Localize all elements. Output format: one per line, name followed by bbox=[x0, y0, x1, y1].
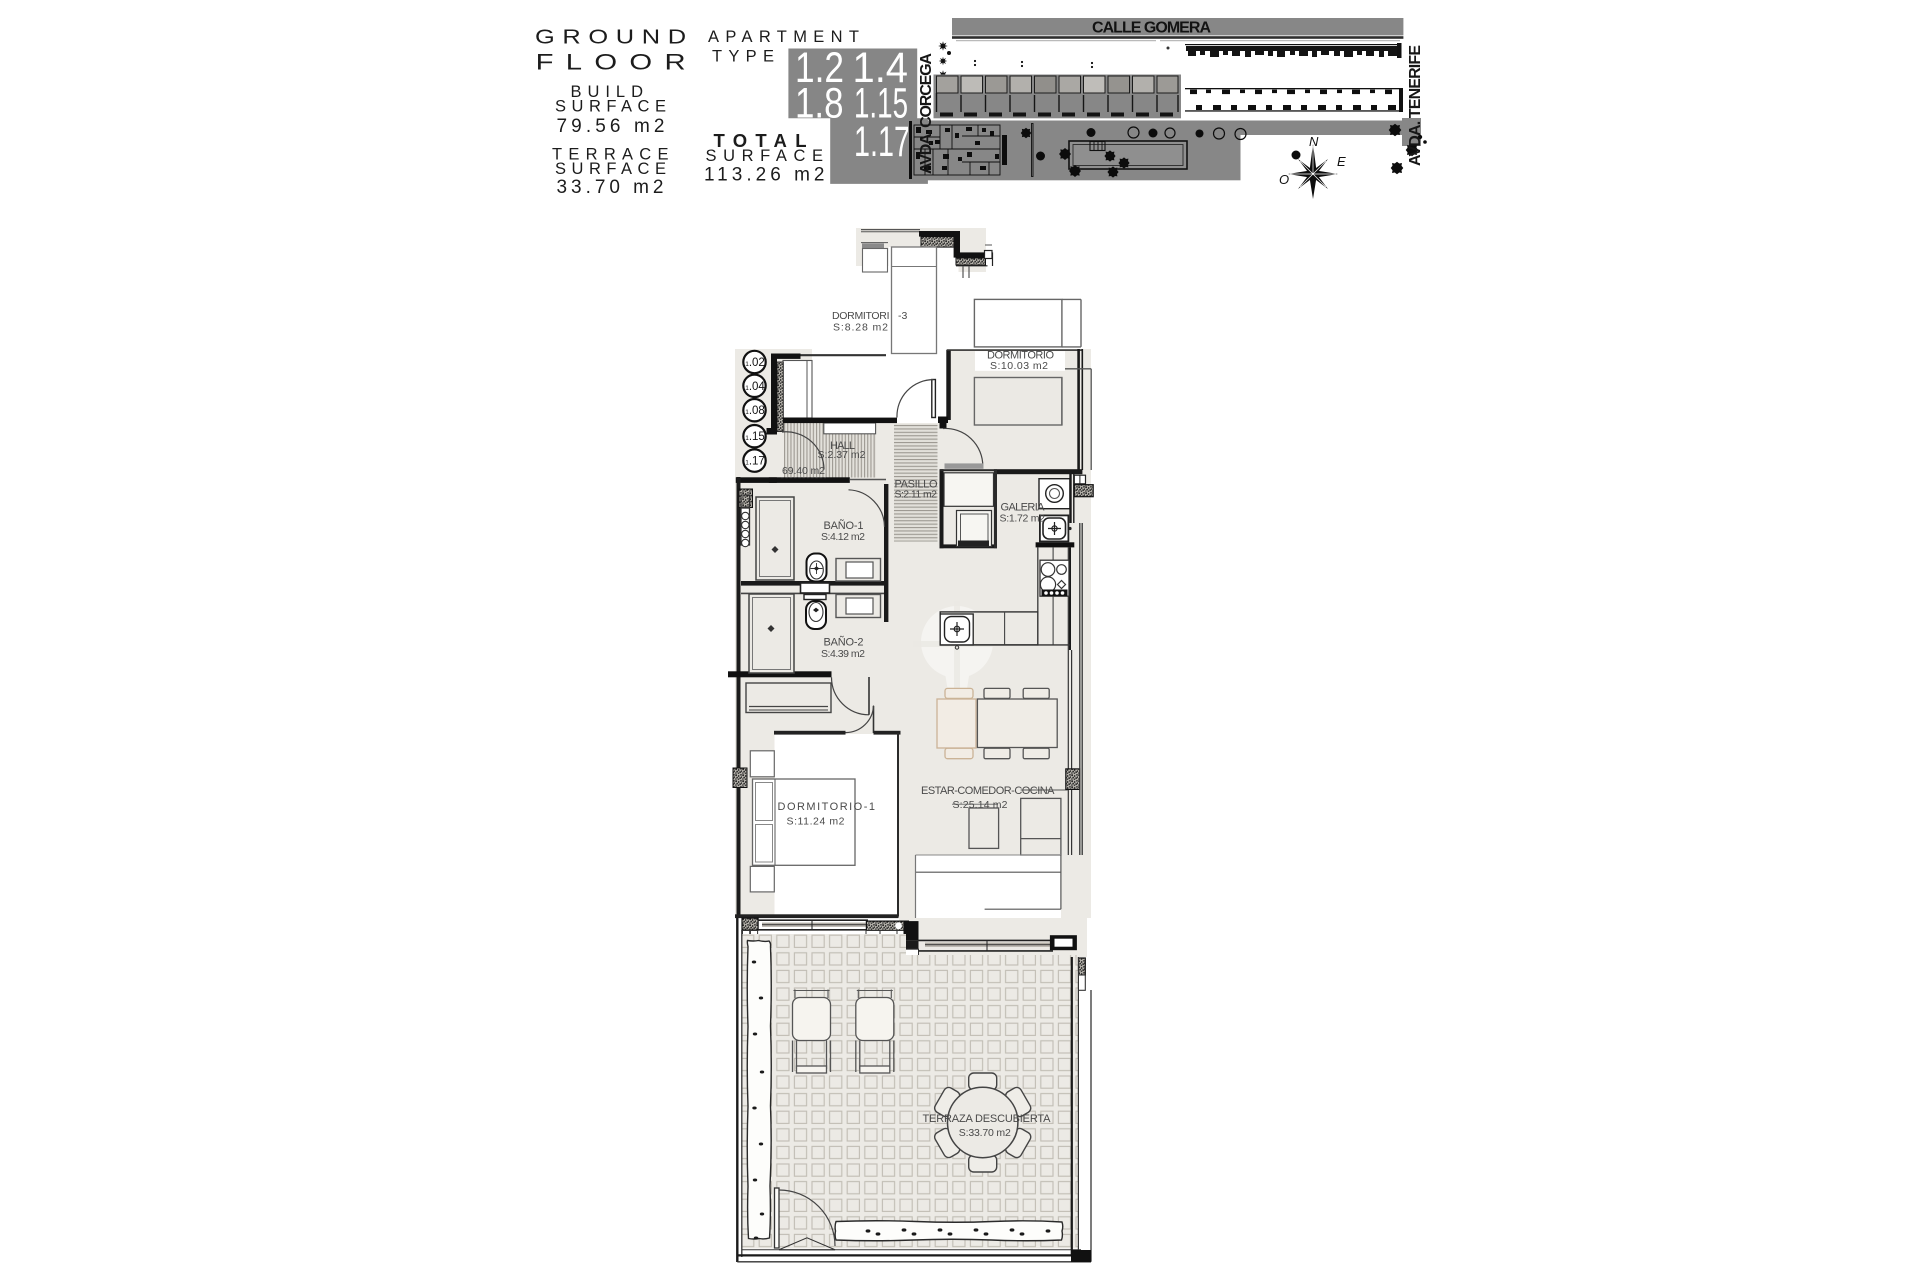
svg-text:ESTAR-COMEDOR-COCINA: ESTAR-COMEDOR-COCINA bbox=[921, 785, 1055, 797]
svg-text:BAÑO-2: BAÑO-2 bbox=[824, 636, 864, 649]
svg-text:O: O bbox=[1279, 172, 1289, 187]
svg-text:S:8.28 m2: S:8.28 m2 bbox=[833, 322, 888, 334]
svg-text:BAÑO-1: BAÑO-1 bbox=[824, 519, 864, 532]
svg-text:S:4.39 m2: S:4.39 m2 bbox=[821, 648, 865, 660]
svg-text:S:1.72 m2: S:1.72 m2 bbox=[1000, 513, 1046, 525]
svg-text:SURFACE: SURFACE bbox=[706, 147, 824, 165]
svg-text:69.40 m2: 69.40 m2 bbox=[782, 465, 825, 477]
svg-text:N: N bbox=[1309, 134, 1319, 149]
svg-text:113.26 m2: 113.26 m2 bbox=[704, 165, 825, 186]
svg-text:79.56 m2: 79.56 m2 bbox=[557, 116, 665, 137]
svg-text:S:2.11 m2: S:2.11 m2 bbox=[895, 489, 938, 501]
svg-text:DORMITORIO-1: DORMITORIO-1 bbox=[778, 801, 876, 813]
svg-text:S:10.03 m2: S:10.03 m2 bbox=[990, 360, 1048, 372]
svg-text:DORMITORI: DORMITORI bbox=[832, 310, 890, 322]
svg-text:1.08: 1.08 bbox=[745, 405, 765, 417]
svg-text:1.04: 1.04 bbox=[745, 381, 765, 393]
svg-text:1.17: 1.17 bbox=[854, 118, 910, 166]
svg-text:TERRAZA DESCUBIERTA: TERRAZA DESCUBIERTA bbox=[923, 1113, 1052, 1125]
svg-text:S:2.37 m2: S:2.37 m2 bbox=[818, 449, 866, 461]
svg-text:33.70 m2: 33.70 m2 bbox=[557, 177, 664, 198]
svg-text:S:4.12 m2: S:4.12 m2 bbox=[821, 531, 865, 543]
svg-text:1.15: 1.15 bbox=[745, 431, 765, 443]
svg-text:E: E bbox=[1337, 154, 1346, 169]
svg-text:S:11.24 m2: S:11.24 m2 bbox=[787, 815, 845, 827]
svg-text:SURFACE: SURFACE bbox=[555, 160, 666, 178]
svg-text:AVDA. CORCEGA: AVDA. CORCEGA bbox=[918, 53, 935, 174]
svg-text:AVDA. TENERIFE: AVDA. TENERIFE bbox=[1407, 45, 1424, 166]
svg-text:SURFACE: SURFACE bbox=[555, 98, 666, 116]
svg-text:1.17: 1.17 bbox=[745, 456, 765, 468]
svg-text:GALERIA: GALERIA bbox=[1001, 501, 1046, 513]
svg-text:1.8: 1.8 bbox=[795, 79, 844, 127]
svg-text:-3: -3 bbox=[898, 310, 907, 322]
svg-text:1.02: 1.02 bbox=[745, 357, 765, 369]
svg-text:S:25.14 m2: S:25.14 m2 bbox=[953, 799, 1008, 811]
svg-text:S:33.70 m2: S:33.70 m2 bbox=[959, 1127, 1011, 1139]
svg-text:CALLE GOMERA: CALLE GOMERA bbox=[1092, 20, 1211, 37]
